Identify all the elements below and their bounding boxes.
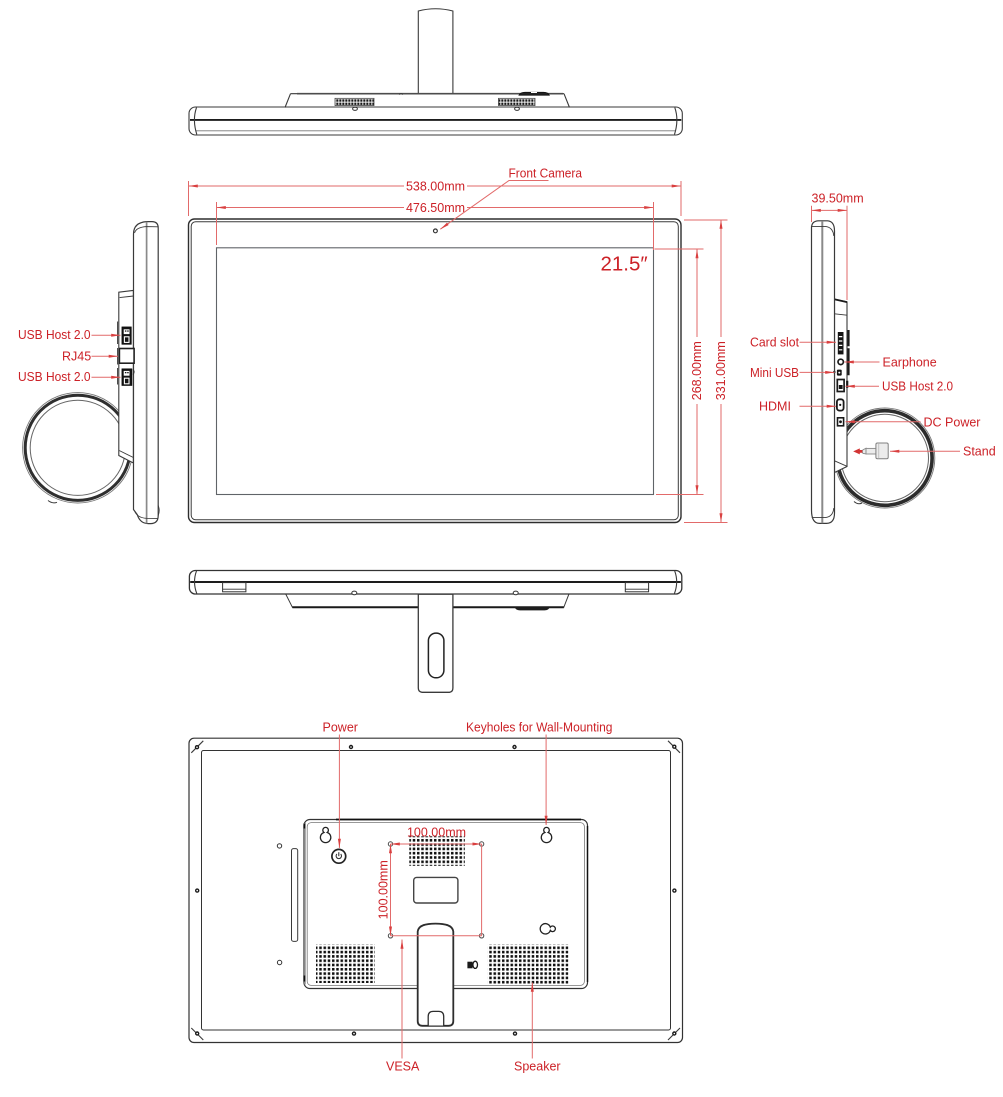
svg-text:USB Host 2.0: USB Host 2.0: [18, 328, 91, 342]
svg-text:100.00mm: 100.00mm: [407, 825, 466, 839]
svg-text:268.00mm: 268.00mm: [690, 341, 704, 400]
svg-text:USB Host 2.0: USB Host 2.0: [18, 370, 91, 384]
svg-text:Card slot: Card slot: [750, 335, 800, 349]
svg-text:Power: Power: [323, 721, 358, 735]
svg-text:HDMI: HDMI: [759, 400, 791, 414]
svg-text:Keyholes for Wall-Mounting: Keyholes for Wall-Mounting: [466, 721, 613, 735]
svg-text:Speaker: Speaker: [514, 1059, 561, 1073]
svg-text:VESA: VESA: [386, 1059, 420, 1073]
svg-text:331.00mm: 331.00mm: [714, 341, 728, 400]
svg-text:RJ45: RJ45: [62, 350, 91, 364]
svg-text:Mini USB: Mini USB: [750, 366, 799, 380]
svg-text:DC Power: DC Power: [924, 415, 981, 429]
svg-text:Stand: Stand: [963, 445, 996, 459]
svg-text:476.50mm: 476.50mm: [406, 201, 465, 215]
svg-text:21.5″: 21.5″: [601, 253, 648, 276]
svg-text:538.00mm: 538.00mm: [406, 180, 465, 194]
svg-text:Front Camera: Front Camera: [509, 166, 583, 180]
svg-text:USB Host 2.0: USB Host 2.0: [882, 380, 953, 394]
svg-text:Earphone: Earphone: [883, 355, 937, 369]
svg-text:39.50mm: 39.50mm: [812, 191, 864, 205]
svg-text:100.00mm: 100.00mm: [377, 860, 391, 919]
